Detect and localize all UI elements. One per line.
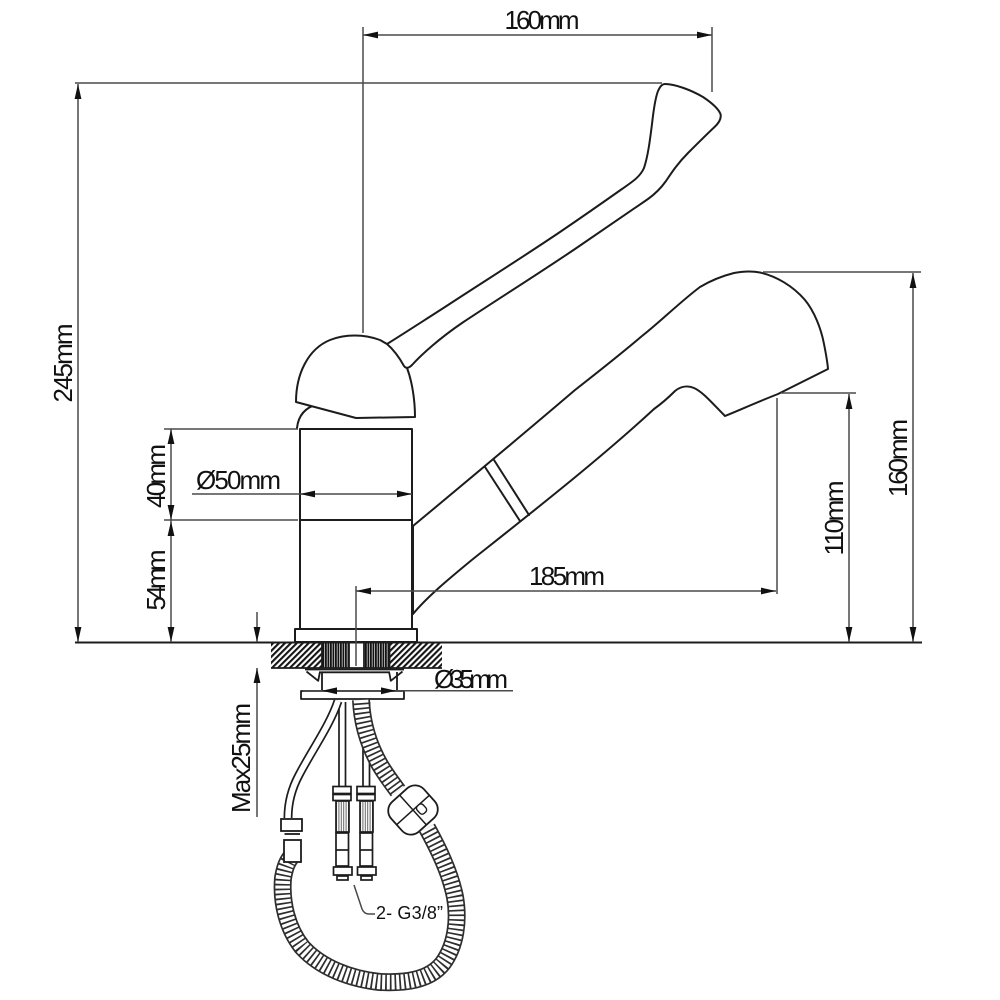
svg-text:54mm: 54mm (141, 550, 171, 611)
svg-text:110mm: 110mm (819, 481, 849, 556)
svg-text:40mm: 40mm (141, 444, 171, 508)
svg-text:245mm: 245mm (48, 324, 78, 403)
svg-text:Max25mm: Max25mm (226, 703, 256, 813)
svg-text:160mm: 160mm (505, 5, 580, 35)
svg-text:Ø50mm: Ø50mm (196, 465, 281, 495)
svg-text:2- G3/8”: 2- G3/8” (376, 903, 443, 923)
svg-text:Ø35mm: Ø35mm (434, 664, 508, 694)
svg-text:160mm: 160mm (883, 419, 913, 497)
svg-text:185mm: 185mm (529, 561, 605, 591)
